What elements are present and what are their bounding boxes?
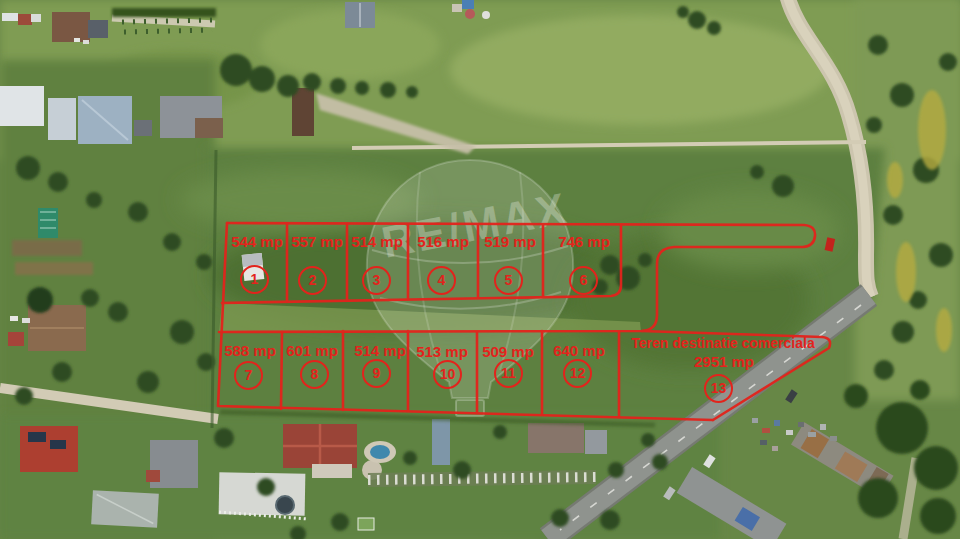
plot-number-badge: 4 [427, 266, 456, 295]
commercial-plot-area: 2951 mp [654, 353, 794, 370]
plot-number-badge: 12 [563, 359, 592, 388]
plot-number-badge: 9 [362, 359, 391, 388]
plot-number-badge: 6 [569, 266, 598, 295]
plot-number-badge: 11 [494, 359, 523, 388]
plot-number-badge: 8 [300, 360, 329, 389]
commercial-plot-title: Teren destinatie comerciala [593, 335, 853, 351]
plot-number-badge: 7 [234, 361, 263, 390]
plot-number-badge: 10 [433, 360, 462, 389]
parcel-labels: 544 mp 557 mp 514 mp 516 mp 519 mp 746 m… [0, 0, 960, 539]
plot-number-badge: 3 [362, 266, 391, 295]
aerial-listing-photo: RE/MAX 544 mp 557 mp 514 mp 516 mp 519 m… [0, 0, 960, 539]
plot-number-badge: 5 [494, 266, 523, 295]
plot-number-badge: 1 [240, 265, 269, 294]
plot-number-badge: 2 [298, 266, 327, 295]
plot-area-label: 746 mp [539, 233, 629, 250]
plot-number-badge: 13 [704, 374, 733, 403]
